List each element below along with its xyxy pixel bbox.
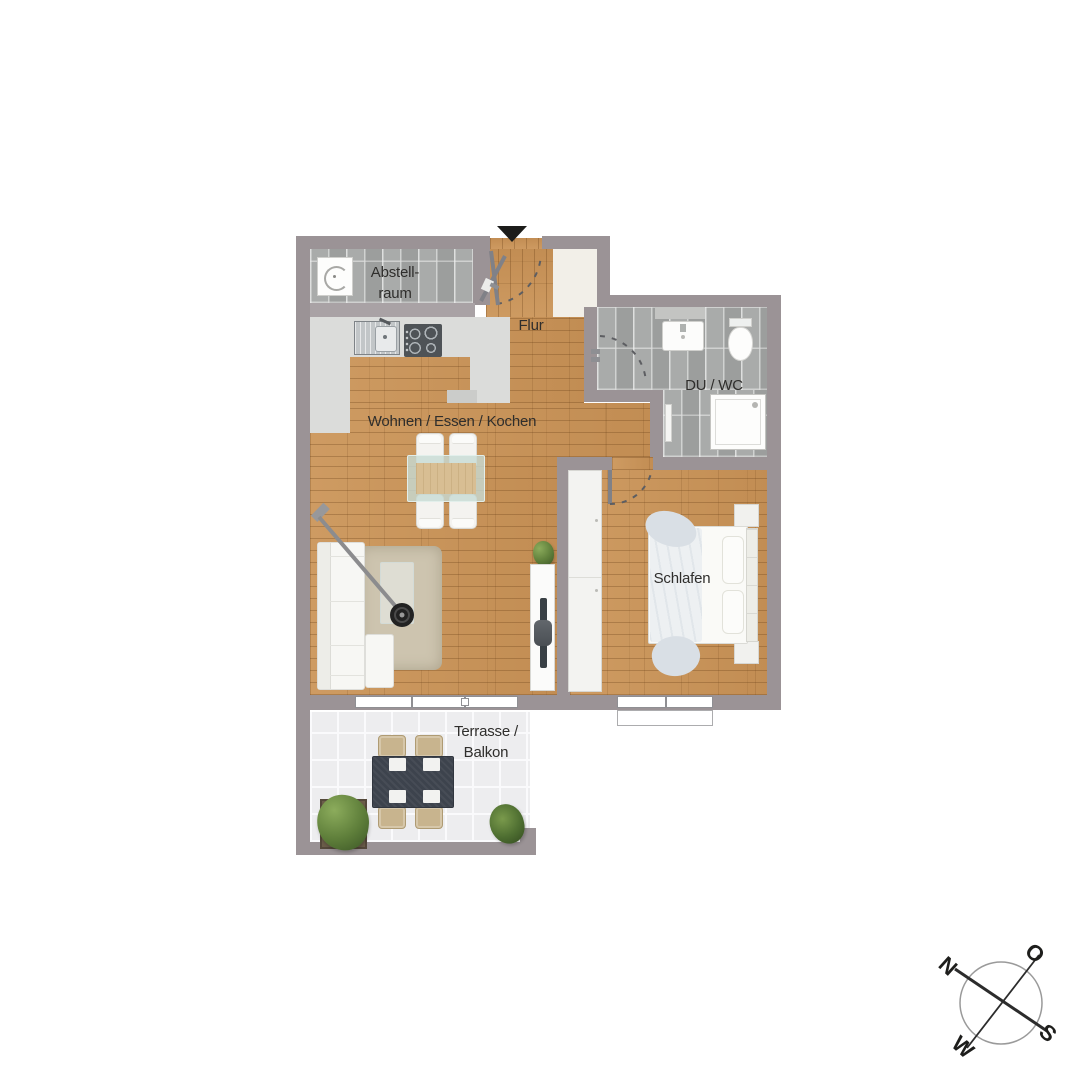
bath-faucet [680,324,686,332]
wall-top-right [542,236,610,249]
headboard [746,528,758,642]
wall-bath-left [584,307,597,402]
sofa-seam [330,675,364,676]
compass-south-label: S [1034,1019,1062,1047]
wardrobe-handle [595,519,598,522]
wall-bath-step-v [650,402,663,457]
nightstand [734,504,759,527]
wall-bedroom-top-left [557,457,612,470]
wall-abstellraum-bottom [310,303,475,317]
wall-left [296,236,310,710]
shower-icon [710,394,766,450]
room-label-flur: Flur [496,315,566,336]
label-line: raum [340,283,450,304]
plant-icon [533,541,554,566]
room-label-abstellraum: Abstell- raum [340,262,450,304]
kitchen-counter-endcap [447,390,477,403]
label-line: Balkon [426,742,546,763]
washer-dot [333,275,336,278]
compass-needle-ns [955,969,1047,1031]
wardrobe-divider [569,577,601,578]
dining-table-top [416,463,476,494]
sofa-backrest [318,543,331,689]
window-mullion [665,697,667,707]
label-line: Terrasse / [426,721,546,742]
wall-bath-step-h [584,390,663,402]
sofa-chaise [365,634,394,688]
compass-needle-wo [967,955,1039,1048]
sofa-seam [330,645,364,646]
bath-vanity-counter [655,307,705,319]
flur-floor [486,249,553,321]
room-label-schlafen: Schlafen [632,568,732,589]
wardrobe [568,470,602,692]
terrace-chair [378,806,406,829]
kitchen-sink-icon [354,321,400,355]
terrace-table [372,756,454,808]
bath-sink-icon [662,321,704,351]
room-label-du-wc: DU / WC [664,375,764,396]
window-mullion [411,697,413,707]
pillow [722,590,744,634]
bath-door-frame-mark [591,357,600,362]
compass-west-label: W [947,1031,979,1064]
living-window [355,696,518,708]
room-label-wohnen-essen-kochen: Wohnen / Essen / Kochen [340,411,564,432]
compass-east-label: O [1020,938,1049,968]
terrace-chair [378,735,406,758]
wall-terrace-left [296,710,310,855]
toilet-tank [729,318,752,327]
sink-basin [375,326,397,352]
terrace-chair [415,806,443,829]
stove-icon [404,324,442,357]
wall-bedroom-top-right [653,457,781,470]
wall-bath-top [597,295,781,307]
compass-north-label: N [934,951,963,980]
window-handle [461,698,469,706]
bath-sink-drain [681,335,685,339]
room-label-terrasse-balkon: Terrasse / Balkon [426,721,546,763]
shower-drain [752,402,758,408]
wardrobe-handle [595,589,598,592]
dining-table [407,455,485,502]
terrace-chair-seat [389,790,406,803]
compass-rose: N O S W [934,938,1062,1063]
label-line: Abstell- [340,262,450,283]
bedroom-window-sill [617,710,713,726]
terrace-chair-seat [423,790,440,803]
bedroom-window [617,696,713,708]
sofa-seam [330,601,364,602]
bedroom-door-threshold [612,457,653,470]
floorplan-canvas: Abstell- raum Flur DU / WC Wohnen / Esse… [0,0,1080,1080]
towel-radiator [665,404,672,442]
toilet-icon [728,327,753,361]
entrance-arrow-icon [497,226,527,242]
compass-circle [960,962,1042,1044]
wall-right [767,295,781,710]
sofa-seam [330,556,364,557]
sofa [317,542,365,690]
sink-drain [383,335,387,339]
terrace-chair-seat [389,758,406,771]
nightstand [734,641,759,664]
tv-stand [534,620,552,646]
coffee-table [380,562,414,624]
bath-door-frame-mark [591,349,600,354]
wall-abstellraum-right [473,236,490,305]
wall-top-left [296,236,490,249]
